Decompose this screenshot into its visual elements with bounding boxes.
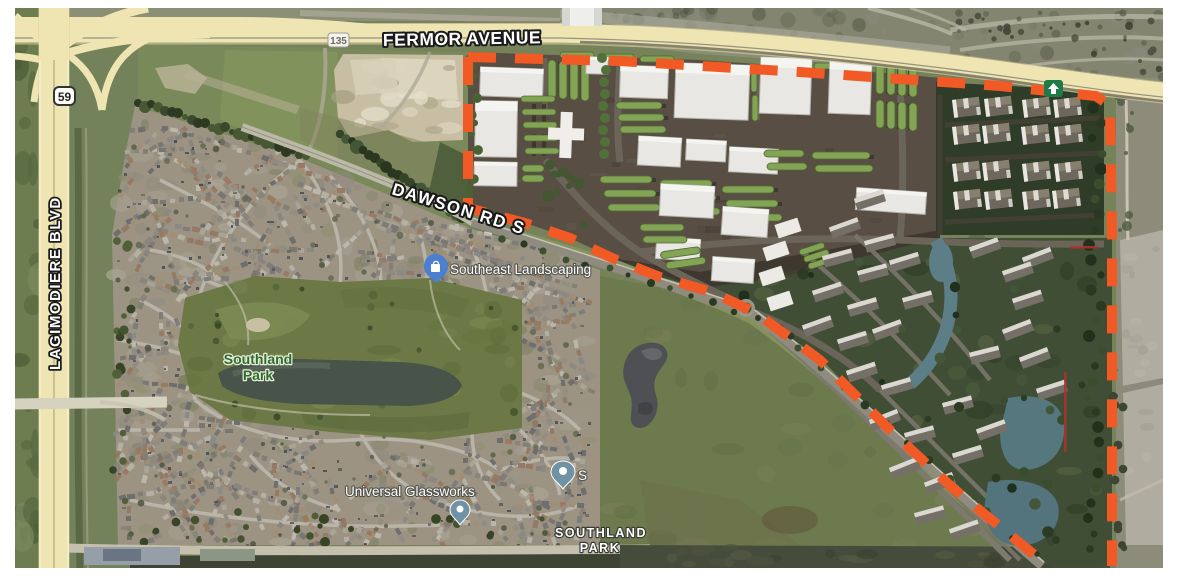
svg-text:135: 135 <box>330 36 347 47</box>
svg-text:SOUTHLAND: SOUTHLAND <box>555 526 647 540</box>
svg-text:Park: Park <box>243 367 274 383</box>
svg-text:Universal Glassworks: Universal Glassworks <box>345 484 475 499</box>
svg-text:S: S <box>578 468 587 483</box>
svg-text:PARK: PARK <box>580 541 621 555</box>
svg-text:Southland: Southland <box>224 351 292 367</box>
svg-text:59: 59 <box>58 90 72 104</box>
svg-text:Southeast Landscaping: Southeast Landscaping <box>450 262 591 277</box>
svg-text:LAGIMODIERE BLVD: LAGIMODIERE BLVD <box>47 196 64 370</box>
svg-text:FERMOR AVENUE: FERMOR AVENUE <box>383 27 542 50</box>
